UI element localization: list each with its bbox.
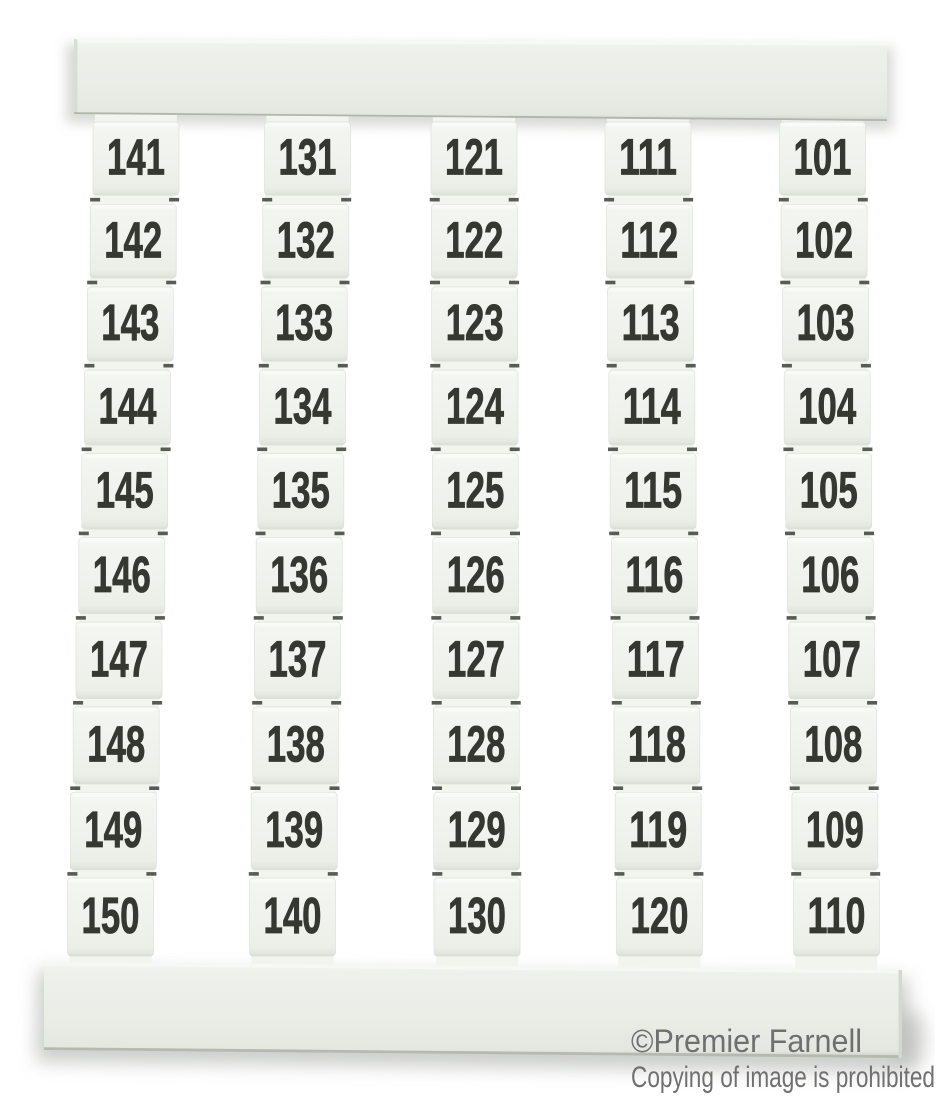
svg-text:112: 112	[620, 211, 678, 268]
svg-text:124: 124	[446, 378, 504, 435]
svg-text:107: 107	[803, 631, 861, 688]
svg-text:117: 117	[627, 631, 685, 688]
svg-text:118: 118	[628, 716, 686, 773]
svg-text:141: 141	[107, 129, 165, 186]
svg-text:137: 137	[269, 631, 327, 688]
svg-text:127: 127	[447, 631, 505, 688]
svg-text:144: 144	[99, 378, 157, 435]
svg-text:132: 132	[277, 211, 335, 268]
svg-text:115: 115	[624, 462, 682, 519]
svg-text:148: 148	[87, 716, 145, 773]
svg-text:104: 104	[798, 378, 856, 435]
svg-text:130: 130	[448, 887, 506, 944]
svg-text:116: 116	[625, 546, 683, 603]
svg-text:140: 140	[264, 887, 322, 944]
svg-text:131: 131	[279, 129, 337, 186]
svg-text:122: 122	[445, 211, 503, 268]
svg-text:135: 135	[272, 462, 330, 519]
svg-text:150: 150	[82, 887, 140, 944]
svg-text:123: 123	[446, 294, 504, 351]
svg-text:121: 121	[445, 129, 503, 186]
svg-text:125: 125	[446, 462, 504, 519]
svg-text:145: 145	[96, 462, 154, 519]
svg-text:139: 139	[265, 801, 323, 858]
svg-text:133: 133	[275, 294, 333, 351]
svg-text:Copying of image is prohibited: Copying of image is prohibited	[631, 1061, 935, 1094]
svg-text:138: 138	[267, 716, 325, 773]
svg-text:149: 149	[84, 801, 142, 858]
svg-text:114: 114	[623, 378, 681, 435]
svg-text:126: 126	[447, 546, 505, 603]
svg-text:136: 136	[270, 546, 328, 603]
svg-text:106: 106	[801, 546, 859, 603]
svg-text:105: 105	[800, 462, 858, 519]
svg-text:101: 101	[794, 129, 852, 186]
svg-text:119: 119	[629, 801, 687, 858]
svg-text:102: 102	[795, 211, 853, 268]
svg-text:142: 142	[104, 211, 162, 268]
svg-text:110: 110	[808, 887, 866, 944]
svg-text:143: 143	[101, 294, 159, 351]
svg-text:147: 147	[90, 631, 148, 688]
svg-text:146: 146	[93, 546, 151, 603]
svg-text:109: 109	[806, 801, 864, 858]
svg-text:108: 108	[804, 716, 862, 773]
svg-text:©Premier Farnell: ©Premier Farnell	[631, 1023, 862, 1059]
svg-text:134: 134	[274, 378, 332, 435]
svg-text:113: 113	[622, 294, 680, 351]
svg-text:111: 111	[619, 129, 677, 186]
svg-text:120: 120	[631, 887, 689, 944]
svg-text:103: 103	[797, 294, 855, 351]
svg-text:129: 129	[448, 801, 506, 858]
svg-text:128: 128	[447, 716, 505, 773]
